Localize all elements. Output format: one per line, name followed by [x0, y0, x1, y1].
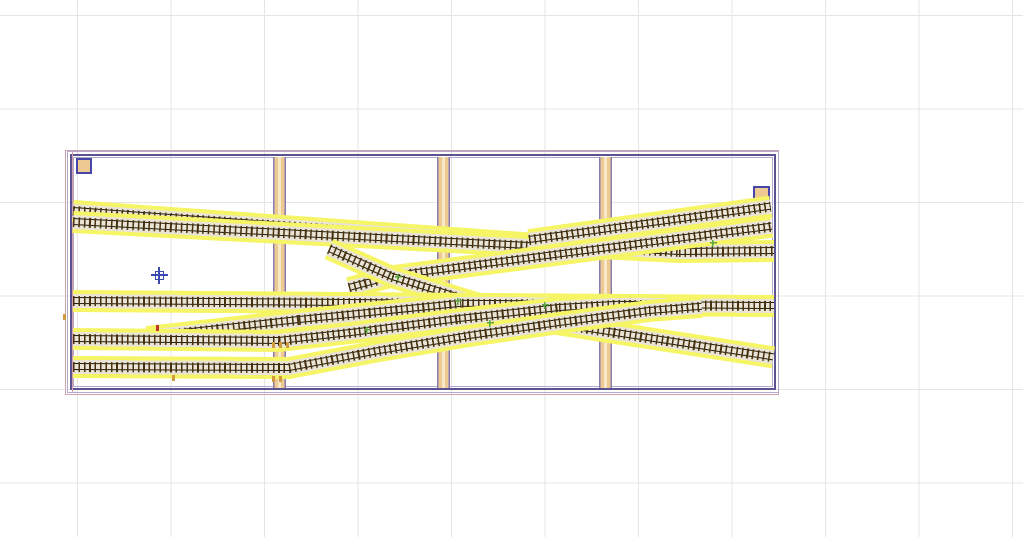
- connection-node-icon: [710, 240, 717, 247]
- tan-joint-tick: [63, 314, 66, 320]
- connection-node-icon: [455, 298, 462, 305]
- crosshair-center-box: [155, 271, 164, 280]
- tan-joint-tick: [279, 376, 282, 382]
- tan-joint-tick: [172, 375, 175, 381]
- cross-beam[interactable]: [599, 157, 612, 388]
- tan-joint-tick: [272, 376, 275, 382]
- track-segment[interactable]: [648, 296, 702, 322]
- connection-node-icon: [395, 274, 402, 281]
- track-segment[interactable]: [73, 328, 282, 352]
- canvas[interactable]: [0, 0, 1023, 537]
- tan-joint-tick: [286, 342, 289, 348]
- track-segment[interactable]: [73, 356, 292, 379]
- cross-beam[interactable]: [273, 157, 286, 388]
- connection-node-icon: [487, 320, 494, 327]
- red-endpoint-tick: [156, 325, 159, 331]
- tan-joint-tick: [272, 342, 275, 348]
- connection-node-icon: [542, 302, 549, 309]
- corner-block[interactable]: [76, 158, 92, 174]
- tan-joint-tick: [279, 342, 282, 348]
- connection-node-icon: [364, 327, 371, 334]
- insertion-cursor-crosshair[interactable]: [151, 267, 168, 284]
